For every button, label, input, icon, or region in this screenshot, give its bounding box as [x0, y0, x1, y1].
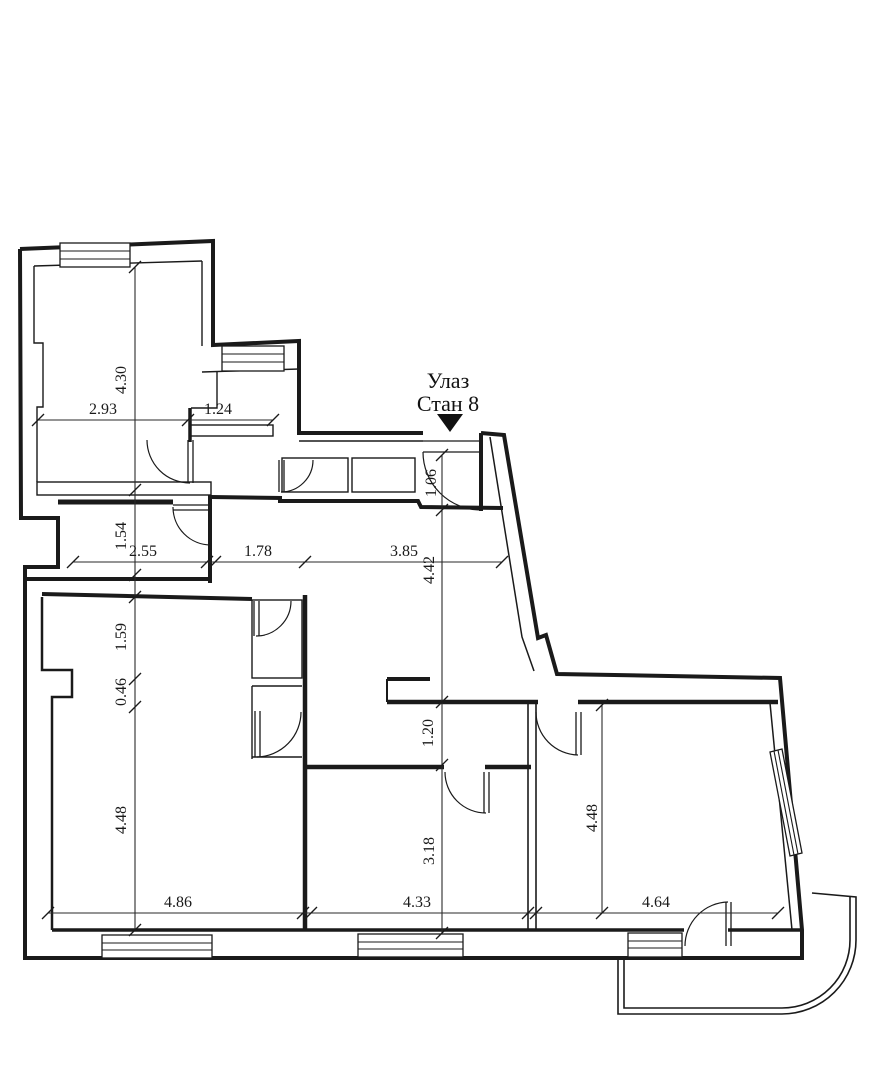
- door-balcony: [685, 902, 731, 946]
- outer-walls: [20, 241, 802, 958]
- dim-hall-left-width: 1.78: [244, 543, 272, 560]
- door-right-room: [536, 712, 581, 755]
- dimension-lines: [32, 261, 784, 939]
- dim-top-room-width: 2.93: [89, 401, 117, 418]
- dim-living-width: 4.86: [164, 894, 192, 911]
- interior-walls: [26, 408, 800, 931]
- dimension-ticks: [32, 261, 784, 939]
- window-top-left: [60, 243, 130, 267]
- window-top-middle: [222, 346, 284, 371]
- dim-entry-width: 1.06: [423, 469, 440, 497]
- dim-living-height: 4.48: [113, 806, 130, 834]
- dim-hall-right-width: 3.85: [390, 543, 418, 560]
- dim-right-room-width: 4.64: [642, 894, 670, 911]
- floor-plan-svg: 4.30 2.93 1.24 1.54 2.55 1.78 3.85 4.42 …: [0, 0, 876, 1080]
- entrance-annotation: Улаз Стан 8: [417, 368, 479, 432]
- dim-top-room-height: 4.30: [113, 366, 130, 394]
- dim-right-room-height: 4.48: [584, 804, 601, 832]
- dim-wc-width: 2.55: [129, 543, 157, 560]
- dim-living-notch: 0.46: [113, 678, 130, 706]
- dim-wc-height: 1.54: [113, 522, 130, 550]
- door-middle-room: [445, 772, 489, 813]
- dim-hall-height: 4.42: [421, 556, 438, 584]
- door-living-room: [255, 711, 301, 757]
- dim-corridor-height: 1.20: [420, 719, 437, 747]
- entrance-label-line1: Улаз: [427, 368, 470, 393]
- dimension-labels: 4.30 2.93 1.24 1.54 2.55 1.78 3.85 4.42 …: [89, 366, 670, 911]
- dim-middle-room-width: 4.33: [403, 894, 431, 911]
- window-bottom-right: [628, 933, 682, 957]
- floor-plan-canvas: 4.30 2.93 1.24 1.54 2.55 1.78 3.85 4.42 …: [0, 0, 876, 1080]
- window-bottom-middle: [358, 934, 463, 957]
- door-top-left-room: [147, 440, 193, 483]
- entrance-label-line2: Стан 8: [417, 391, 479, 416]
- dim-middle-room-height: 3.18: [421, 837, 438, 865]
- dim-living-upper-height: 1.59: [113, 623, 130, 651]
- door-wc: [173, 505, 211, 545]
- entrance-arrow-icon: [437, 414, 463, 432]
- doors: [147, 440, 731, 946]
- window-bottom-left: [102, 935, 212, 958]
- dim-neck-width: 1.24: [204, 401, 232, 418]
